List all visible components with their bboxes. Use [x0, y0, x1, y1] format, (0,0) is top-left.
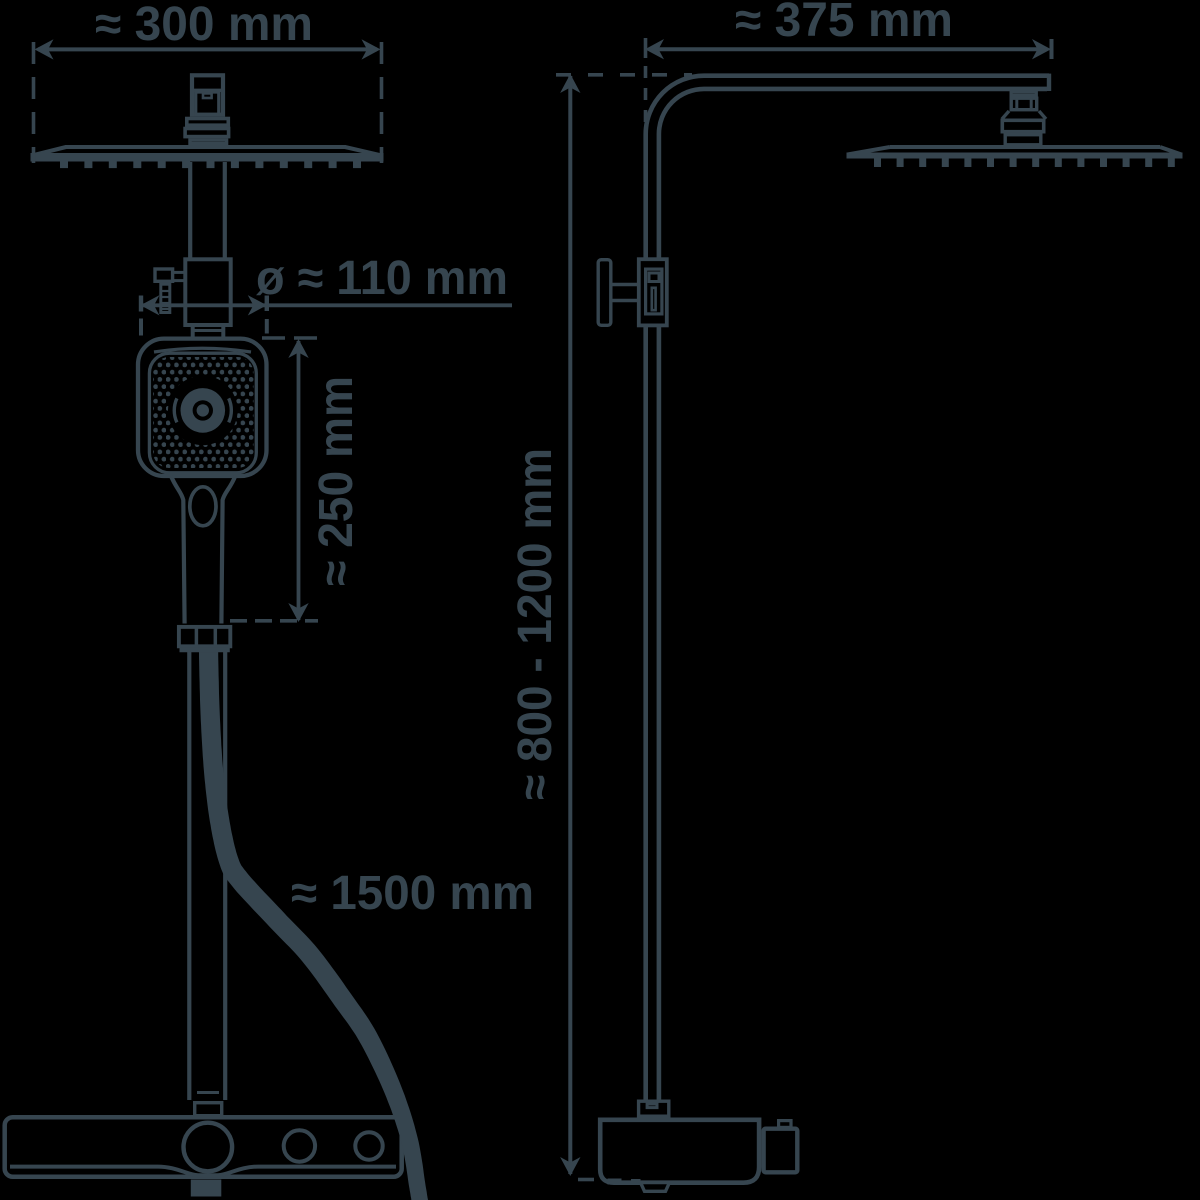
svg-text:≈ 375 mm: ≈ 375 mm: [735, 0, 953, 47]
svg-text:≈ 300 mm: ≈ 300 mm: [95, 0, 313, 51]
svg-text:≈ 800 - 1200 mm: ≈ 800 - 1200 mm: [509, 448, 562, 800]
svg-text:≈ 250 mm: ≈ 250 mm: [310, 376, 363, 586]
svg-text:ø ≈ 110 mm: ø ≈ 110 mm: [256, 252, 508, 305]
svg-text:≈ 1500 mm: ≈ 1500 mm: [291, 867, 534, 920]
